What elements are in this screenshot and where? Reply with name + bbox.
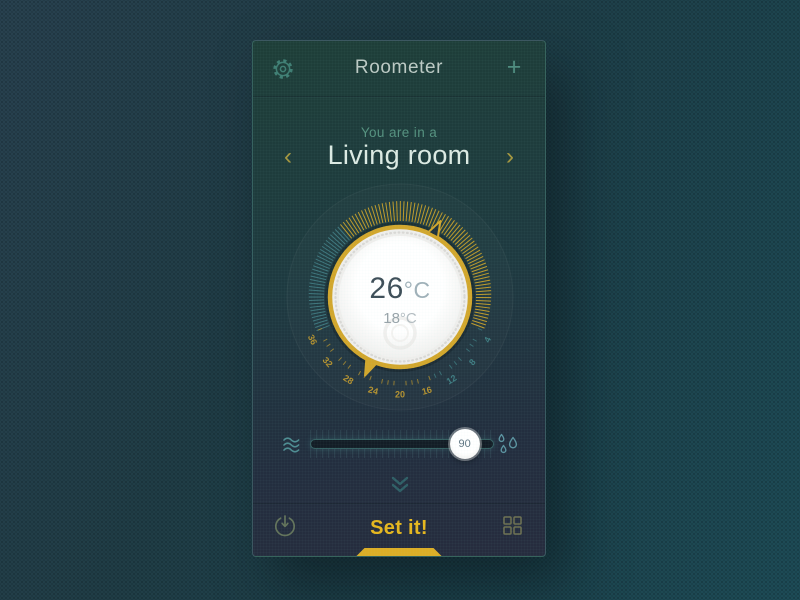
waves-icon (282, 434, 303, 455)
grid-icon (501, 514, 524, 537)
dial-graphic: 3632282420161284 (265, 162, 535, 432)
double-chevron-down-icon (386, 475, 414, 495)
slider-value: 90 (458, 438, 470, 450)
slider-knob[interactable]: 90 (450, 429, 480, 459)
plus-icon: + (507, 53, 522, 81)
room-subtitle: You are in a (253, 125, 545, 140)
dial-face (339, 236, 461, 358)
humidity-slider[interactable]: 90 (310, 439, 494, 449)
desktop-background: { "header": { "title": "Roometer", "add_… (0, 0, 800, 600)
app-header: Roometer + (253, 41, 545, 97)
add-room-button[interactable]: + (501, 51, 527, 83)
droplets-icon (496, 432, 522, 457)
layout-button[interactable] (501, 514, 524, 537)
expand-more-button[interactable] (386, 475, 414, 495)
thermostat-dial[interactable]: 3632282420161284 26°C 18°C (265, 162, 535, 432)
dial-scale-number: 20 (395, 389, 405, 399)
active-tab-indicator (357, 548, 442, 556)
roometer-app-card: Roometer + You are in a Living room ‹ › … (252, 40, 546, 557)
footer-bar: Set it! (253, 503, 545, 556)
